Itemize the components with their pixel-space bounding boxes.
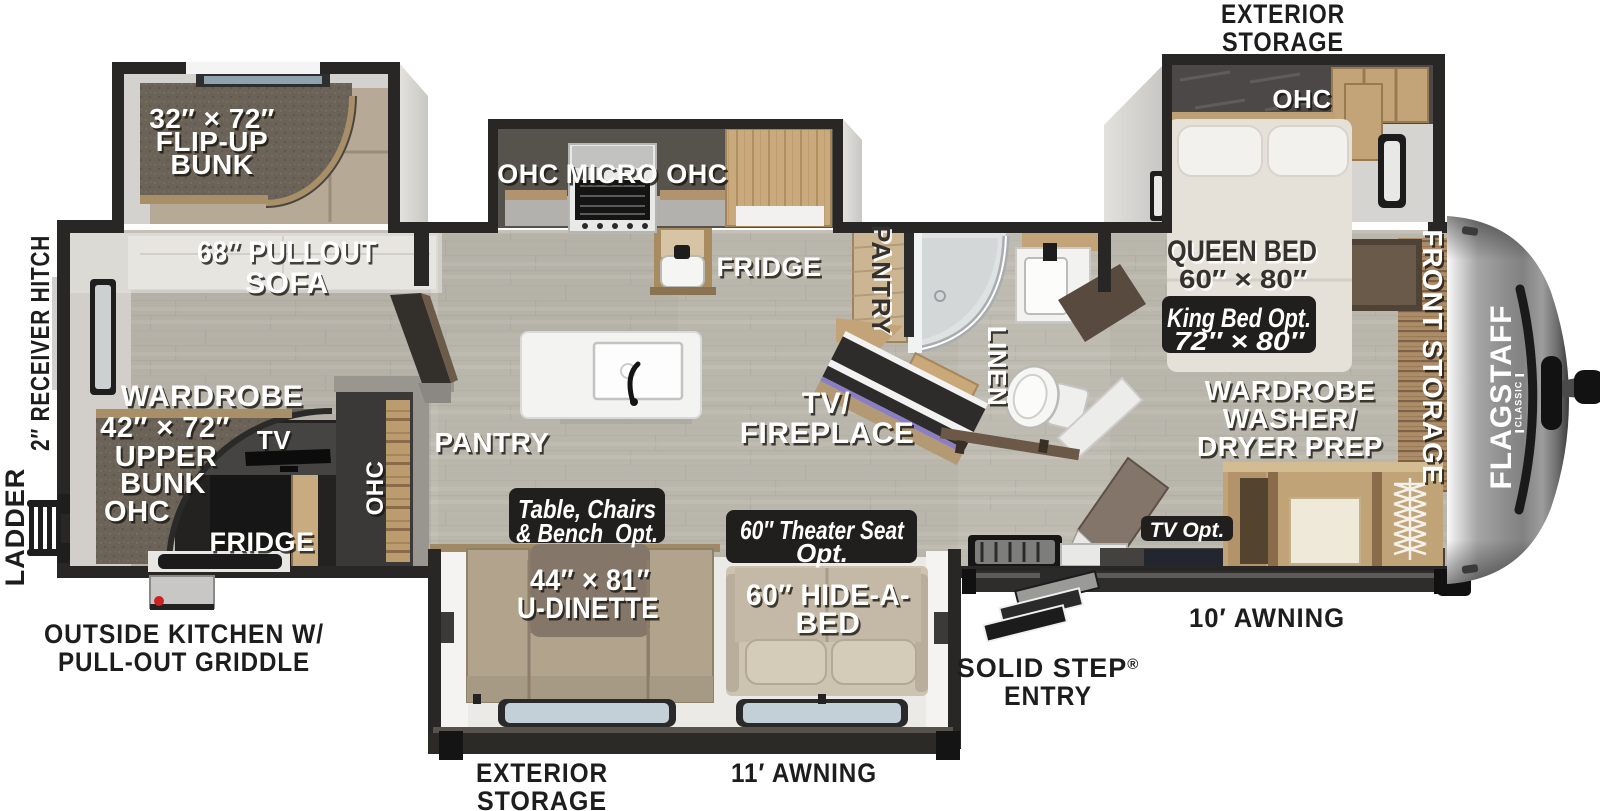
svg-text:TV Opt.: TV Opt.: [1150, 519, 1225, 542]
svg-text:CLASSIC: CLASSIC: [1513, 381, 1523, 428]
svg-text:OUTSIDE KITCHEN W/: OUTSIDE KITCHEN W/: [44, 619, 324, 649]
svg-text:ENTRY: ENTRY: [1004, 681, 1092, 711]
svg-text:WASHER/: WASHER/: [1223, 403, 1357, 434]
svg-text:FRIDGE: FRIDGE: [716, 252, 821, 282]
svg-text:EXTERIOR: EXTERIOR: [1221, 0, 1345, 29]
svg-text:DRYER PREP: DRYER PREP: [1197, 431, 1383, 462]
svg-text:PULL-OUT GRIDDLE: PULL-OUT GRIDDLE: [58, 647, 310, 677]
svg-text:MICRO: MICRO: [566, 159, 659, 189]
svg-text:10′ AWNING: 10′ AWNING: [1189, 603, 1345, 633]
svg-text:OHC: OHC: [362, 461, 389, 516]
svg-text:PANTRY: PANTRY: [866, 225, 896, 335]
svg-text:OHC: OHC: [1272, 84, 1331, 114]
svg-text:72″ × 80″: 72″ × 80″: [1174, 326, 1306, 356]
svg-text:BED: BED: [796, 607, 861, 640]
svg-text:TV/: TV/: [802, 387, 850, 420]
svg-text:LINEN: LINEN: [982, 326, 1012, 407]
svg-text:STORAGE: STORAGE: [477, 786, 607, 811]
svg-text:PANTRY: PANTRY: [435, 427, 550, 458]
svg-text:& Bench Opt.: & Bench Opt.: [516, 518, 658, 548]
svg-text:BUNK: BUNK: [171, 149, 254, 180]
svg-text:LADDER: LADDER: [0, 468, 30, 587]
svg-text:WARDROBE: WARDROBE: [1205, 375, 1375, 406]
svg-text:TV: TV: [257, 425, 291, 455]
svg-text:SOLID STEP®: SOLID STEP®: [957, 653, 1140, 683]
svg-text:OHC: OHC: [497, 159, 559, 189]
svg-text:STORAGE: STORAGE: [1222, 27, 1344, 57]
svg-text:OHC: OHC: [104, 496, 170, 528]
svg-text:60″ × 80″: 60″ × 80″: [1179, 264, 1307, 294]
svg-text:FRONT STORAGE: FRONT STORAGE: [1417, 229, 1448, 484]
svg-text:EXTERIOR: EXTERIOR: [476, 758, 608, 788]
svg-text:42″ × 72″: 42″ × 72″: [100, 412, 230, 444]
svg-text:68″ PULLOUT: 68″ PULLOUT: [197, 236, 377, 269]
svg-text:2″ RECEIVER HITCH: 2″ RECEIVER HITCH: [25, 235, 55, 451]
svg-text:SOFA: SOFA: [245, 267, 329, 300]
svg-text:U-DINETTE: U-DINETTE: [517, 592, 659, 625]
svg-text:FIREPLACE: FIREPLACE: [740, 417, 915, 450]
svg-text:FRIDGE: FRIDGE: [209, 527, 314, 557]
svg-text:Opt.: Opt.: [796, 538, 848, 568]
svg-text:OHC: OHC: [666, 159, 728, 189]
svg-text:11′ AWNING: 11′ AWNING: [731, 758, 877, 788]
svg-text:WARDROBE: WARDROBE: [121, 380, 303, 413]
